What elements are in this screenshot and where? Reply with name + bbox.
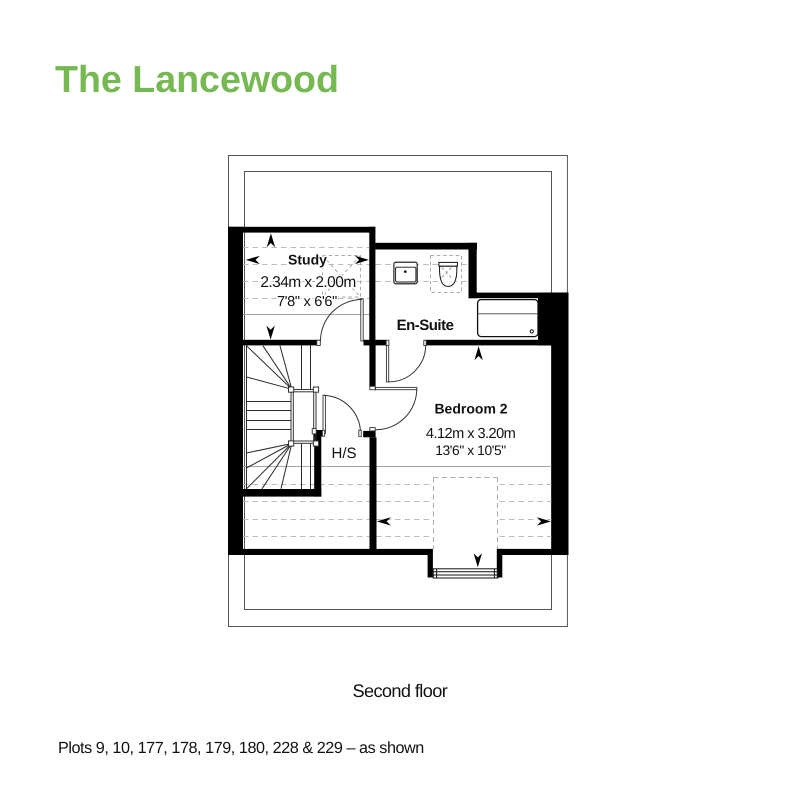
svg-text:7'8" x 6'6": 7'8" x 6'6" <box>277 294 337 310</box>
svg-text:Plots 9, 10, 177, 178, 179, 18: Plots 9, 10, 177, 178, 179, 180, 228 & 2… <box>58 739 424 757</box>
svg-text:The Lancewood: The Lancewood <box>55 58 339 100</box>
svg-text:Study: Study <box>288 252 327 268</box>
svg-text:H/S: H/S <box>331 445 356 462</box>
svg-text:Bedroom 2: Bedroom 2 <box>434 401 507 417</box>
svg-text:En-Suite: En-Suite <box>397 317 454 334</box>
svg-text:2.34m x 2.00m: 2.34m x 2.00m <box>260 274 355 291</box>
svg-text:4.12m x 3.20m: 4.12m x 3.20m <box>426 426 516 442</box>
svg-text:13'6" x 10'5": 13'6" x 10'5" <box>435 443 506 458</box>
svg-text:Second floor: Second floor <box>352 681 447 701</box>
